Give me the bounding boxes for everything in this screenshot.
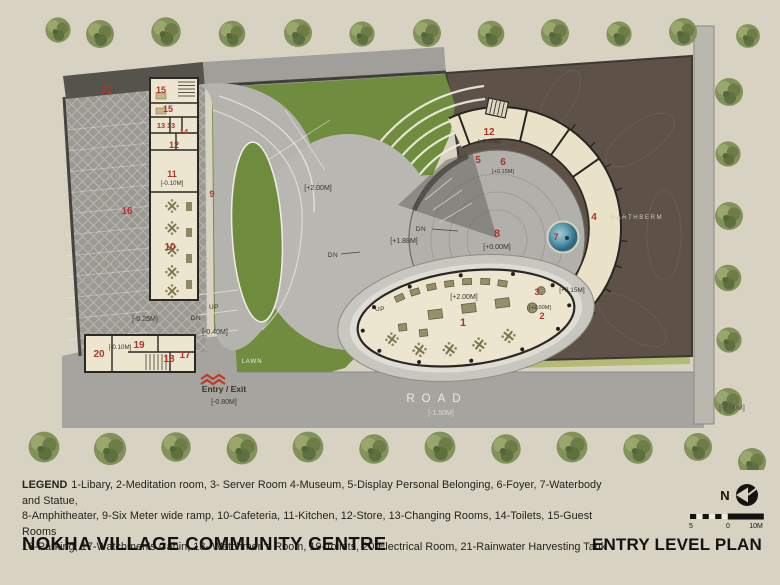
label-level-ramp-top: [+2.00M] [304,185,331,192]
scale-mid-label: 0 [726,523,730,530]
label-room-13a: 13 [157,121,165,130]
label-room-3: 3 [534,287,539,297]
label-earthberm: EARTHBERM [611,214,663,221]
strip-building [150,78,198,300]
label-room-15a: 15 [156,85,166,95]
label-level-kitchen: [-0.10M] [161,180,184,187]
label-level-store: [+0.15M] [478,139,500,145]
label-level-ring: [+0.15M] [559,287,585,294]
label-room-16: 16 [121,206,133,217]
label-room-18: 18 [163,354,175,365]
label-room-5: 5 [475,155,481,166]
label-dn-steps: DN [416,226,426,233]
label-level-ramp-bottom: [-0.40M] [202,329,228,336]
label-ramp-9: 9 [209,189,214,199]
label-room-4: 4 [591,212,597,223]
label-level-entry: [-0.80M] [211,399,237,406]
north-icon [736,484,758,506]
right-path-strip [694,26,714,424]
label-room-19: 19 [133,340,145,351]
waterbody [548,222,579,253]
label-room-11: 11 [167,169,177,179]
label-level-library: [+2.00M] [450,294,477,301]
label-dn-body: DN [328,252,338,259]
legend-title: LEGEND [22,479,67,491]
label-dn-ramp: DN [191,315,201,322]
label-room-12-ring: 12 [483,127,495,138]
scale-right-label: 10M [749,523,763,530]
north-scale-block: N 5 0 10M [641,481,766,536]
label-room-10: 10 [164,242,176,253]
compass-scalebar: N 5 0 10M [641,481,766,531]
label-room-6: 6 [500,157,506,168]
statue-marker [565,236,569,240]
plan-title: ENTRY LEVEL PLAN [592,535,762,555]
label-level-foyer: [+0.15M] [492,169,514,175]
project-title: NOKHA VILLAGE COMMUNITY CENTRE [22,533,387,555]
label-room-17: 17 [179,350,191,361]
label-room-15b: 15 [163,104,173,114]
label-waterbody-7: 7 [553,232,558,242]
label-level-amphitheater: [+0.00M] [483,244,510,251]
label-road: ROAD [406,393,467,405]
label-library-1: 1 [460,317,466,329]
label-up-ramp: UP [209,304,219,311]
label-level-parking: [-0.25M] [132,316,158,323]
label-level-right-strip: [-2.00M] [719,405,745,412]
presentation-board: 21 16 15 15 13 13 14 12 11 [-0.10M] 10 9… [0,0,780,585]
north-label: N [720,488,729,503]
scale-left-label: 5 [689,523,693,530]
scale-bar: 5 0 10M [689,514,764,531]
label-level-road: [-1.50M] [428,410,454,417]
ring-stair-stub [486,98,509,118]
label-room-20: 20 [93,349,105,360]
legend-line-1: 1-Libary, 2-Meditation room, 3- Server R… [22,479,602,507]
label-room-2: 2 [539,311,544,321]
label-entry-exit: Entry / Exit [202,384,247,394]
label-up-oval: UP [375,306,385,313]
label-room-12-strip: 12 [169,140,179,150]
label-amphitheater-8: 8 [494,228,500,240]
label-room-13b: 13 [167,121,175,130]
label-room-21: 21 [101,85,113,96]
label-room-14: 14 [180,127,189,136]
label-level-entry-building: [-0.10M] [109,344,132,351]
label-level-188: [+1.88M] [390,238,417,245]
label-lawn: LAWN [241,359,262,365]
site-plan-drawing: 21 16 15 15 13 13 14 12 11 [-0.10M] 10 9… [0,0,780,470]
